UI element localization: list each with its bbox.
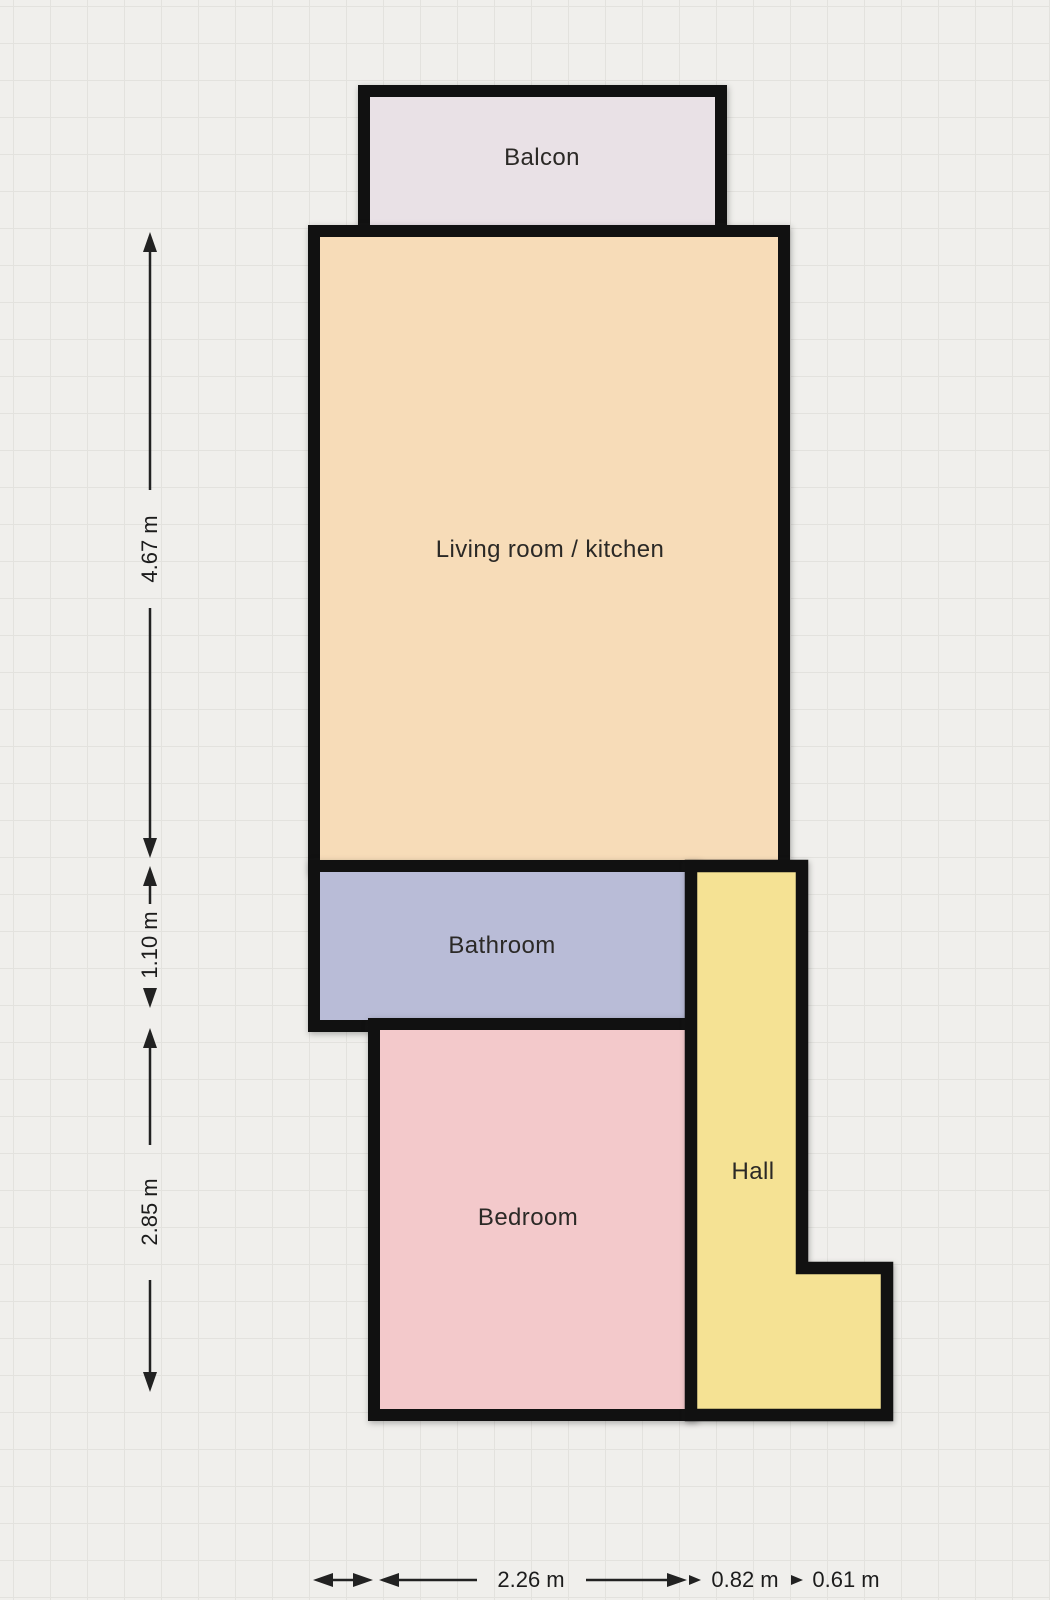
- dimension-label-4-67-m: 4.67 m: [137, 515, 163, 582]
- room-bedroom-label: Bedroom: [478, 1204, 578, 1232]
- room-hall[interactable]: [691, 866, 887, 1415]
- dimension-label-0-82-m: 0.82 m: [711, 1567, 778, 1593]
- room-hall-label: Hall: [732, 1158, 775, 1186]
- dimension-label-1-10-m: 1.10 m: [137, 911, 163, 978]
- room-balcony-label: Balcon: [504, 144, 580, 172]
- dimension-horizontal-offset: [313, 1573, 373, 1587]
- dimension-label-2-26-m: 2.26 m: [497, 1567, 564, 1593]
- floorplan-canvas: Balcon Living room / kitchen Bathroom Be…: [0, 0, 1050, 1600]
- dimension-label-0-61-m: 0.61 m: [812, 1567, 879, 1593]
- room-living-room-kitchen-label: Living room / kitchen: [436, 536, 665, 564]
- dimension-label-2-85-m: 2.85 m: [137, 1178, 163, 1245]
- room-bathroom-label: Bathroom: [448, 932, 555, 960]
